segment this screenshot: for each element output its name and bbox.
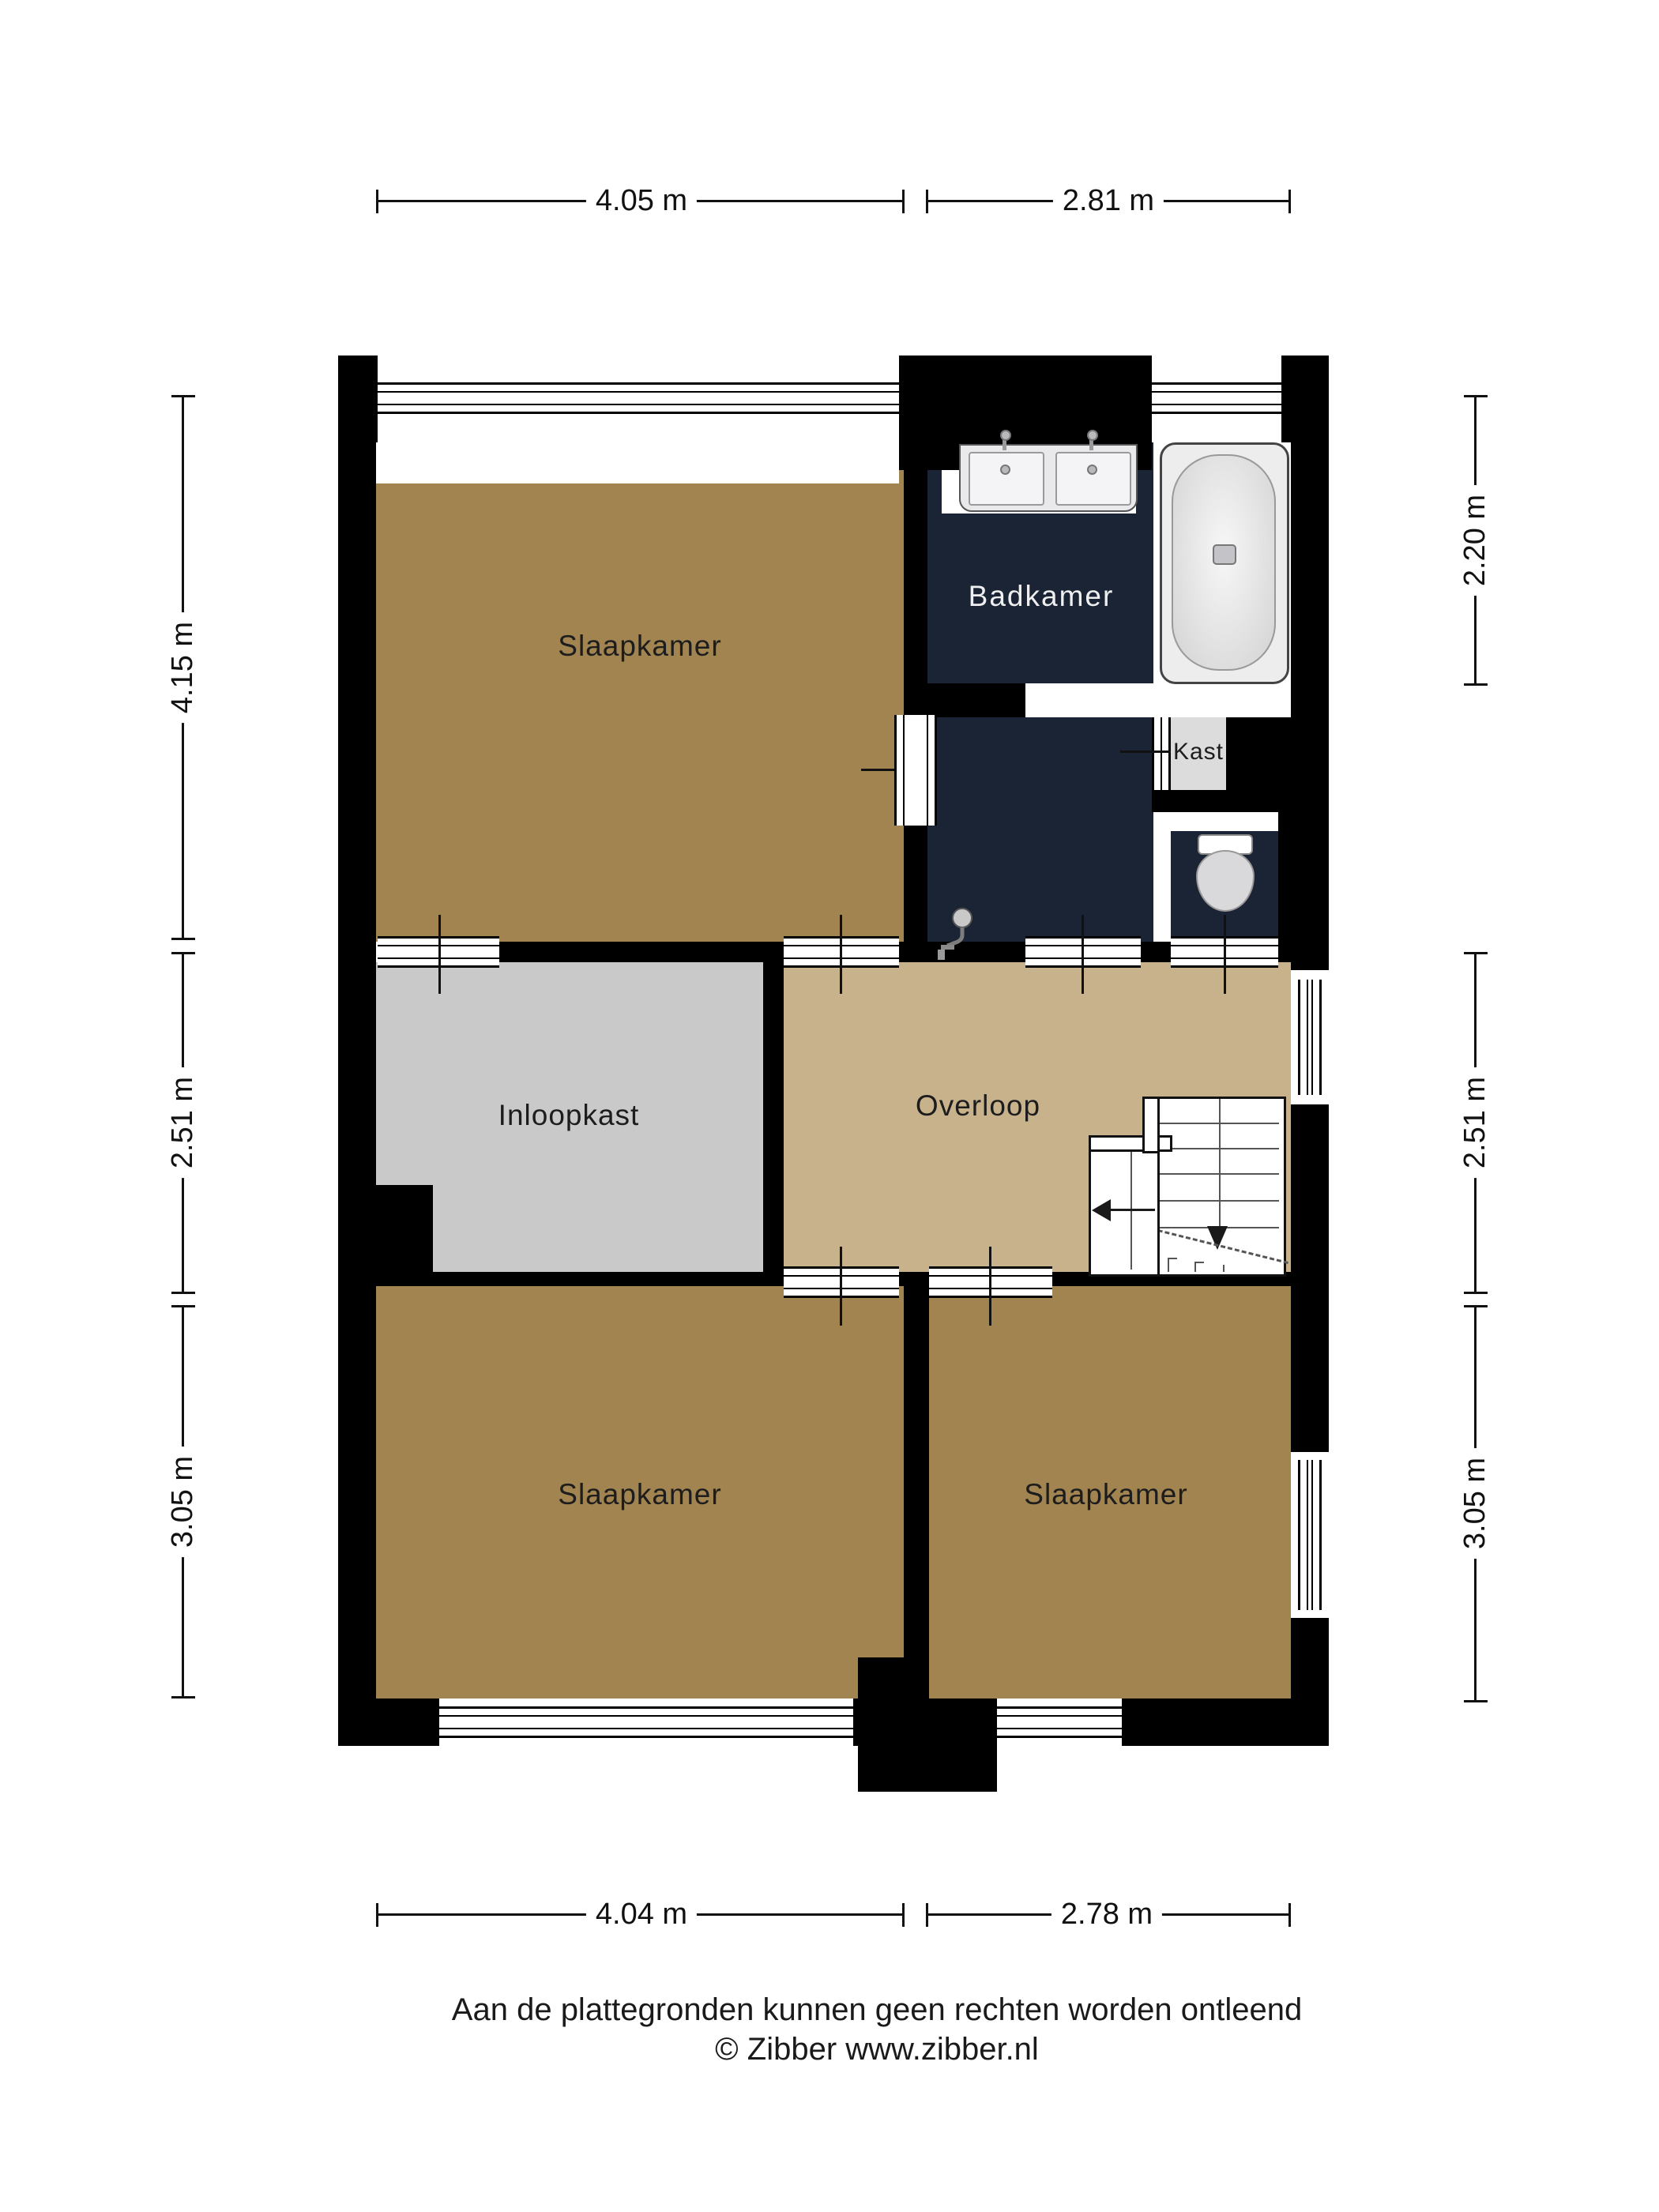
door-tick xyxy=(861,769,894,771)
door-tick xyxy=(840,1247,842,1326)
wall-left xyxy=(338,355,376,1746)
dim-tick xyxy=(902,1903,905,1927)
dim-tick xyxy=(171,1696,195,1698)
faucet-icon xyxy=(1087,430,1098,441)
door-opening-bedroom-shower xyxy=(894,715,937,826)
dim-tick xyxy=(1464,683,1488,686)
window-top-bedroom xyxy=(378,382,899,414)
dimension-label-top-2: 2.81 m xyxy=(1053,184,1164,219)
window-right-bedroom xyxy=(1298,1460,1322,1610)
dim-tick xyxy=(1464,1292,1488,1294)
room-label-bedroom-bottom-right: Slaapkamer xyxy=(1024,1478,1187,1511)
room-label-closet: Kast xyxy=(1173,739,1224,766)
dim-tick xyxy=(902,190,905,213)
wall-a-segment xyxy=(499,942,763,962)
disclaimer-text: Aan de plattegronden kunnen geen rechten… xyxy=(452,1992,1302,2028)
sink-drain xyxy=(1087,465,1097,475)
stair-center-line xyxy=(1219,1099,1221,1230)
door-opening-closet xyxy=(1152,717,1171,790)
stair-tread xyxy=(1157,1173,1279,1175)
stair-winder-line xyxy=(1194,1262,1204,1263)
wall-bottom-left-corner xyxy=(338,1698,439,1746)
window-right-landing xyxy=(1298,980,1322,1095)
dim-tick xyxy=(376,190,378,213)
wall-toilet-right xyxy=(1278,812,1291,942)
dimension-label-left-1: 4.15 m xyxy=(166,612,201,723)
room-label-bedroom-top-left: Slaapkamer xyxy=(558,630,721,663)
dim-tick xyxy=(171,1305,195,1307)
closet-leader-line xyxy=(1120,750,1171,753)
wall-walkincloset-notch xyxy=(376,1185,433,1272)
stair-exit-arrow-icon xyxy=(1092,1199,1111,1221)
bathtub xyxy=(1160,442,1289,684)
wall-bottom-right xyxy=(1122,1698,1329,1746)
wall-top-corner-right xyxy=(1281,355,1329,442)
wall-divider-bedrooms xyxy=(904,1286,929,1746)
shower-head-icon xyxy=(935,905,976,962)
dim-tick xyxy=(1464,1700,1488,1702)
dimension-label-bottom-2: 2.78 m xyxy=(1051,1898,1162,1932)
room-label-bedroom-bottom-left: Slaapkamer xyxy=(558,1478,721,1511)
dim-tick xyxy=(376,1903,378,1927)
floorplan-page: { "footer": { "line1": "Aan de plattegro… xyxy=(0,0,1659,2212)
room-label-bathroom: Badkamer xyxy=(969,580,1115,613)
wall-b-segment xyxy=(376,1272,784,1286)
stair-winder-line xyxy=(1223,1265,1224,1272)
dimension-label-left-3: 3.05 m xyxy=(166,1446,201,1557)
double-sink xyxy=(959,444,1138,512)
sink-drain xyxy=(1000,465,1010,475)
window-recess-strip xyxy=(376,442,899,483)
dim-tick xyxy=(171,1292,195,1294)
dim-tick xyxy=(171,938,195,940)
stair-tread xyxy=(1157,1200,1279,1202)
dim-tick xyxy=(1464,395,1488,397)
room-label-landing: Overloop xyxy=(916,1089,1040,1123)
dim-tick xyxy=(171,395,195,397)
door-tick xyxy=(1082,915,1084,994)
toilet-room-shelf xyxy=(1171,812,1278,831)
sink-basin xyxy=(969,452,1044,506)
dim-tick xyxy=(1288,190,1291,213)
floor-bedroom-top-left xyxy=(376,442,904,942)
sink-basin xyxy=(1055,452,1131,506)
wall-b-segment xyxy=(899,1272,929,1286)
wall-top-corner-left xyxy=(338,355,378,442)
dimension-label-right-2: 2.51 m xyxy=(1458,1067,1493,1178)
wall-a-segment xyxy=(1278,942,1291,962)
dimension-label-left-2: 2.51 m xyxy=(166,1067,201,1178)
wall-a-segment xyxy=(1141,942,1171,962)
stair-winder-line xyxy=(1168,1258,1169,1272)
staircase-landing-edge xyxy=(1089,1135,1172,1152)
dimension-label-right-3: 3.05 m xyxy=(1458,1448,1493,1559)
window-bottom-left-bedroom xyxy=(439,1706,853,1738)
dimension-label-bottom-1: 4.04 m xyxy=(586,1898,697,1932)
dim-tick xyxy=(1464,952,1488,954)
stair-tread xyxy=(1157,1123,1279,1124)
wall-under-closet xyxy=(1152,790,1291,812)
chimney-notch xyxy=(858,1657,904,1698)
door-tick xyxy=(438,915,441,994)
stair-tread xyxy=(1157,1148,1279,1149)
dim-tick xyxy=(926,190,928,213)
bathtub-drain xyxy=(1213,544,1236,565)
dimension-label-right-1: 2.20 m xyxy=(1458,485,1493,596)
dim-tick xyxy=(171,952,195,954)
stair-winder-line xyxy=(1168,1258,1177,1259)
dim-tick xyxy=(926,1903,928,1927)
wall-divider-walkincloset-landing xyxy=(763,942,784,1272)
staircase-step xyxy=(1142,1097,1160,1153)
wall-closet-right-block xyxy=(1226,717,1291,790)
door-tick xyxy=(989,1247,991,1326)
door-tick xyxy=(1224,915,1226,994)
dimension-label-top-1: 4.05 m xyxy=(586,184,697,219)
dim-tick xyxy=(1288,1903,1291,1927)
door-tick xyxy=(840,915,842,994)
copyright-text: © Zibber www.zibber.nl xyxy=(715,2032,1039,2067)
window-top-bathroom xyxy=(1152,382,1281,414)
room-label-walk-in-closet: Inloopkast xyxy=(498,1099,640,1132)
window-bottom-right-bedroom xyxy=(997,1706,1122,1738)
stair-exit-line xyxy=(1106,1209,1155,1211)
dim-tick xyxy=(1464,1305,1488,1307)
faucet-icon xyxy=(1000,430,1011,441)
doorway-gap-bathroom-shower xyxy=(1025,683,1153,717)
